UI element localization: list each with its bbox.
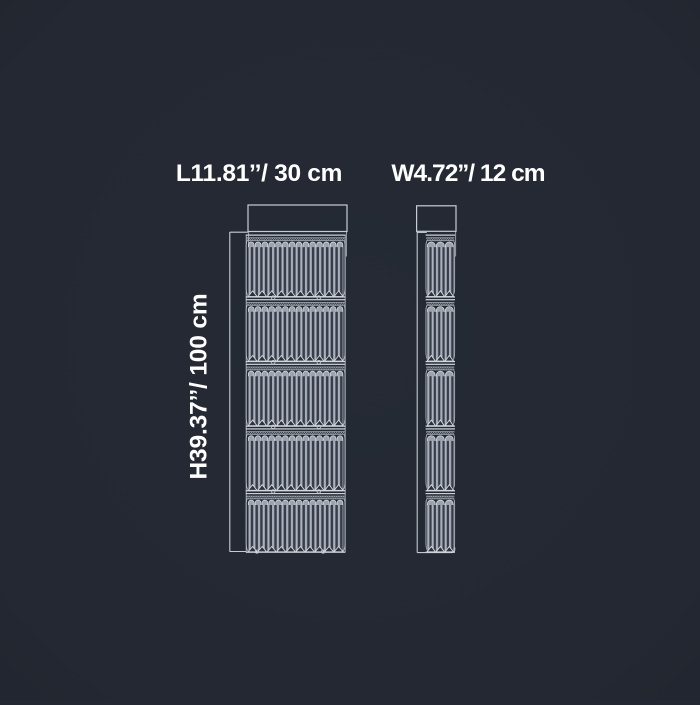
svg-text:W4.72’’/ 12 cm: W4.72’’/ 12 cm <box>391 160 544 187</box>
svg-text:H39.37’’/ 100 cm: H39.37’’/ 100 cm <box>186 293 213 479</box>
svg-text:L11.81’’/ 30 cm: L11.81’’/ 30 cm <box>176 160 342 187</box>
